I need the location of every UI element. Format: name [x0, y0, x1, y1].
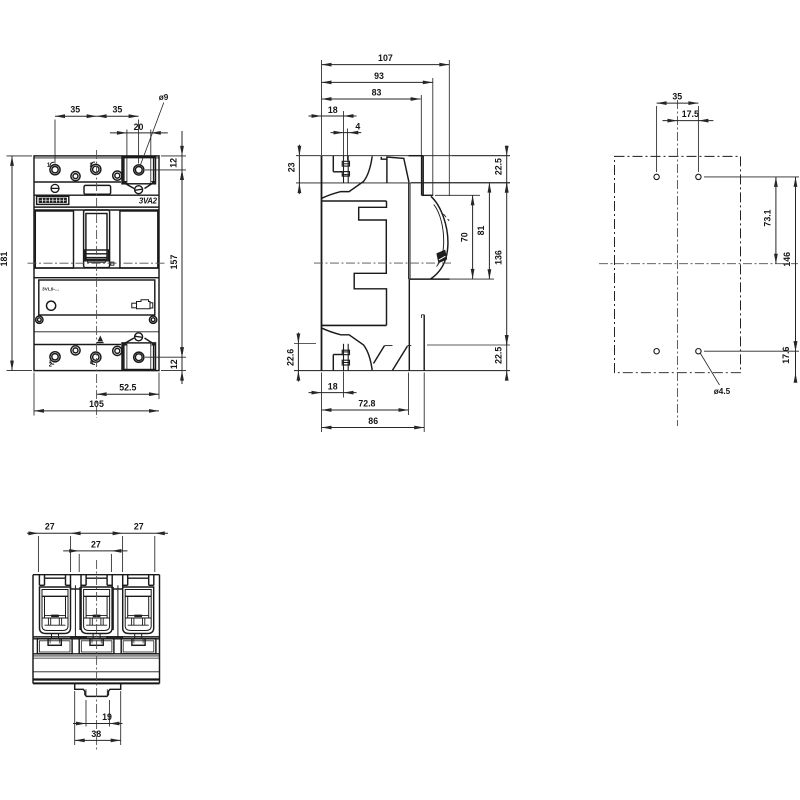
svg-text:83: 83 [372, 87, 382, 97]
svg-text:3VA2: 3VA2 [139, 197, 158, 206]
svg-text:18: 18 [328, 381, 338, 391]
svg-text:157: 157 [169, 255, 179, 270]
svg-text:23: 23 [286, 162, 296, 172]
svg-text:27: 27 [134, 522, 144, 532]
svg-text:81: 81 [476, 226, 486, 236]
svg-text:17.6: 17.6 [781, 347, 791, 364]
svg-text:105: 105 [89, 399, 104, 409]
svg-text:35: 35 [70, 104, 80, 114]
svg-text:27: 27 [45, 522, 55, 532]
svg-text:72.8: 72.8 [358, 398, 375, 408]
svg-text:4: 4 [355, 121, 360, 131]
svg-text:17.5: 17.5 [682, 109, 699, 119]
svg-text:35: 35 [113, 104, 123, 114]
svg-text:70: 70 [459, 232, 469, 242]
svg-text:22.6: 22.6 [286, 349, 296, 366]
svg-text:18: 18 [328, 105, 338, 115]
svg-text:136: 136 [493, 250, 503, 265]
svg-text:3VL9-...: 3VL9-... [42, 286, 59, 292]
svg-text:ø9: ø9 [159, 93, 169, 102]
svg-text:73.1: 73.1 [762, 209, 772, 226]
svg-text:27: 27 [91, 539, 101, 549]
svg-text:86: 86 [368, 416, 378, 426]
svg-text:52.5: 52.5 [119, 382, 136, 392]
svg-text:35: 35 [672, 92, 682, 102]
svg-text:146: 146 [782, 252, 792, 267]
svg-text:181: 181 [0, 252, 9, 267]
svg-text:107: 107 [378, 53, 393, 63]
svg-text:38: 38 [91, 729, 101, 739]
svg-text:20: 20 [134, 122, 144, 132]
svg-text:12: 12 [169, 158, 179, 168]
svg-text:ø4.5: ø4.5 [714, 387, 731, 396]
svg-text:22.5: 22.5 [494, 158, 504, 175]
svg-text:22.5: 22.5 [494, 347, 504, 364]
svg-text:93: 93 [374, 71, 384, 81]
svg-text:12: 12 [169, 359, 179, 369]
svg-text:19: 19 [102, 712, 112, 722]
